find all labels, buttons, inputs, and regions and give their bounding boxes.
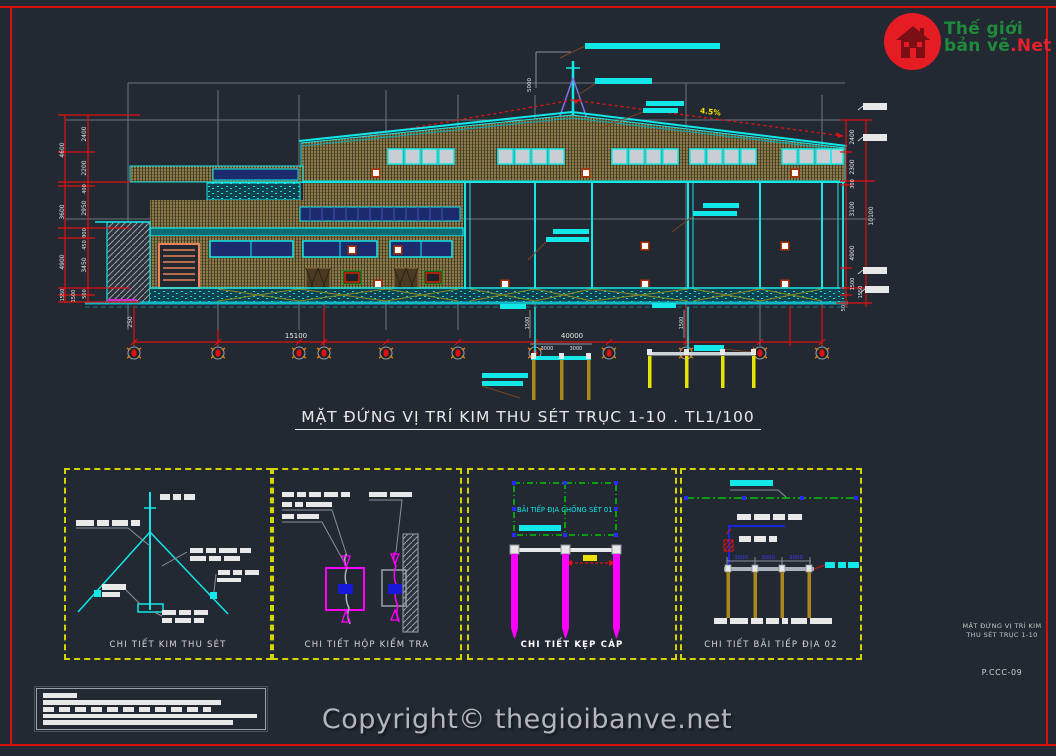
note-line: [43, 720, 233, 725]
svg-text:2400: 2400: [81, 126, 88, 141]
ground-rods: [724, 565, 814, 618]
svg-text:3000: 3000: [541, 346, 554, 352]
svg-text:2400: 2400: [849, 129, 856, 144]
svg-text:4900: 4900: [849, 245, 856, 260]
open-structure-columns: [465, 183, 843, 290]
note-line: [43, 700, 221, 705]
notes-box: [36, 688, 266, 730]
svg-text:450: 450: [82, 240, 88, 250]
mast-height-dim: 5000: [527, 78, 533, 92]
svg-text:4600: 4600: [59, 142, 66, 157]
svg-text:50: 50: [841, 305, 847, 311]
test-box-front: [326, 554, 364, 624]
svg-text:3000: 3000: [734, 555, 748, 561]
panel3-caption: CHI TIẾT KẸP CÁP: [469, 640, 675, 650]
earthing-pits: 3000 3000 1500 1500: [525, 307, 756, 400]
test-box-side: [382, 534, 418, 632]
detail-kep-cap: BÃI TIẾP ĐỊA CHỐNG SÉT 01: [469, 470, 675, 638]
frame-bottom: [0, 744, 1056, 746]
sheet-title-line1: MẶT ĐỨNG VỊ TRÍ KIM: [952, 622, 1052, 631]
annex-wall: [95, 222, 150, 302]
sheet-title: MẶT ĐỨNG VỊ TRÍ KIM THU SÉT TRỤC 1-10: [952, 622, 1052, 640]
sheet-title-line2: THU SÉT TRỤC 1-10: [952, 631, 1052, 640]
left-building: [130, 166, 463, 302]
svg-text:10100: 10100: [868, 206, 875, 225]
svg-text:1500: 1500: [71, 290, 77, 303]
svg-text:2200: 2200: [81, 160, 88, 175]
cad-sheet: Thế giới bản vẽ.Net: [0, 0, 1056, 756]
svg-text:4900: 4900: [59, 254, 66, 269]
panel-kep-cap: BÃI TIẾP ĐỊA CHỐNG SÉT 01 CHI TIẾT KẸP C…: [467, 468, 677, 660]
svg-text:900: 900: [82, 228, 88, 238]
svg-text:2300: 2300: [849, 159, 856, 174]
detail-hop-kiem-tra: [274, 470, 460, 638]
annotation-labels: [482, 43, 758, 398]
panel-bai-tiep-dia: 3000 3000 3000 CHI TIẾT BÃI TIẾP ĐỊA 02: [680, 468, 862, 660]
svg-text:3100: 3100: [849, 201, 856, 216]
level-markers: [858, 103, 889, 293]
svg-text:3450: 3450: [81, 257, 88, 272]
cable-clamp-assembly: [510, 545, 621, 638]
svg-text:3000: 3000: [789, 555, 803, 561]
elevation-drawing: 5000 4.5%: [0, 0, 1056, 464]
note-line: [43, 714, 257, 718]
panel-kim-thu-set: CHI TIẾT KIM THU SÉT: [64, 468, 272, 660]
note-line: [43, 707, 211, 712]
panel2-caption: CHI TIẾT HỘP KIỂM TRA: [274, 640, 460, 650]
detail-bai-tiep-dia: 3000 3000 3000: [682, 470, 860, 638]
clerestory-band: [299, 112, 847, 182]
panel4-caption: CHI TIẾT BÃI TIẾP ĐỊA 02: [682, 640, 860, 650]
note-line: [43, 693, 77, 698]
panel1-caption: CHI TIẾT KIM THU SÉT: [66, 640, 270, 650]
span-right: 40000: [561, 332, 583, 340]
span-left: 15100: [285, 332, 307, 340]
dim-250: 250: [127, 316, 134, 328]
rod-dims: 3000 3000 3000: [727, 555, 811, 565]
svg-text:400: 400: [82, 184, 88, 194]
boundary-line: [684, 496, 858, 500]
strip-windows: [210, 241, 452, 257]
area-label: BÃI TIẾP ĐỊA CHỐNG SÉT 01: [517, 504, 613, 514]
detail-kim-thu-set: [66, 470, 270, 638]
louver-grille: [159, 244, 199, 288]
svg-text:3000: 3000: [761, 555, 775, 561]
svg-text:1550: 1550: [60, 289, 66, 302]
panel-hop-kiem-tra: CHI TIẾT HỘP KIỂM TRA: [272, 468, 462, 660]
label-bars: [76, 494, 259, 623]
slope-label: 4.5%: [700, 106, 722, 118]
sheet-code: P.CCC-09: [952, 668, 1052, 677]
svg-text:1500: 1500: [850, 278, 856, 291]
svg-text:2950: 2950: [81, 200, 88, 215]
label-bars: [282, 492, 412, 519]
plinth: [85, 288, 848, 307]
svg-text:500: 500: [82, 289, 88, 299]
drawing-title: MẶT ĐỨNG VỊ TRÍ KIM THU SÉT TRỤC 1-10 . …: [0, 407, 1056, 430]
svg-text:3000: 3000: [570, 346, 583, 352]
earthing-area-outline: BÃI TIẾP ĐỊA CHỐNG SÉT 01: [512, 481, 618, 537]
copyright-watermark: Copyright© thegioibanve.net: [322, 704, 732, 735]
svg-text:300: 300: [850, 179, 856, 189]
svg-text:3600: 3600: [59, 204, 66, 219]
